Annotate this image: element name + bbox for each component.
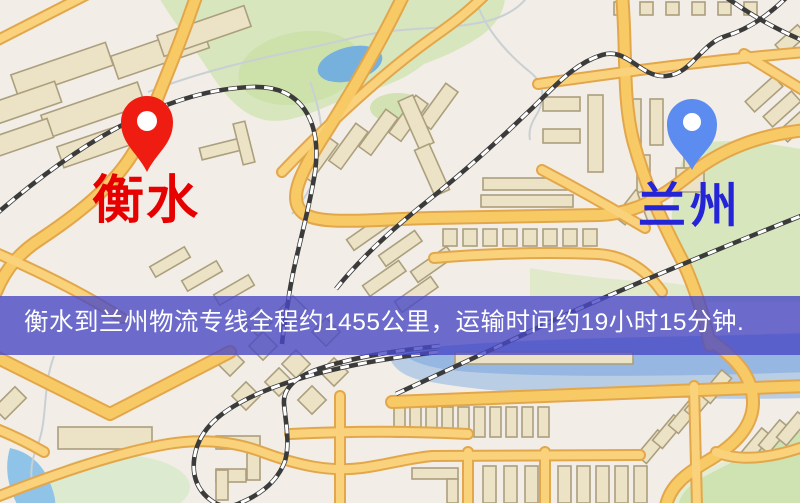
destination-label: 兰州	[638, 180, 742, 233]
origin-label: 衡水	[92, 172, 200, 230]
banner-text: 衡水到兰州物流专线全程约1455公里，运输时间约19小时15分钟.	[24, 308, 744, 336]
destination-pin-hole	[683, 113, 701, 131]
route-info-banner: 衡水到兰州物流专线全程约1455公里，运输时间约19小时15分钟.	[0, 296, 800, 355]
origin-pin-hole	[137, 111, 157, 131]
map-image: 衡水到兰州物流专线全程约1455公里，运输时间约19小时15分钟. 衡水 兰州	[0, 0, 800, 503]
map-canvas: 衡水到兰州物流专线全程约1455公里，运输时间约19小时15分钟. 衡水 兰州	[0, 0, 800, 503]
